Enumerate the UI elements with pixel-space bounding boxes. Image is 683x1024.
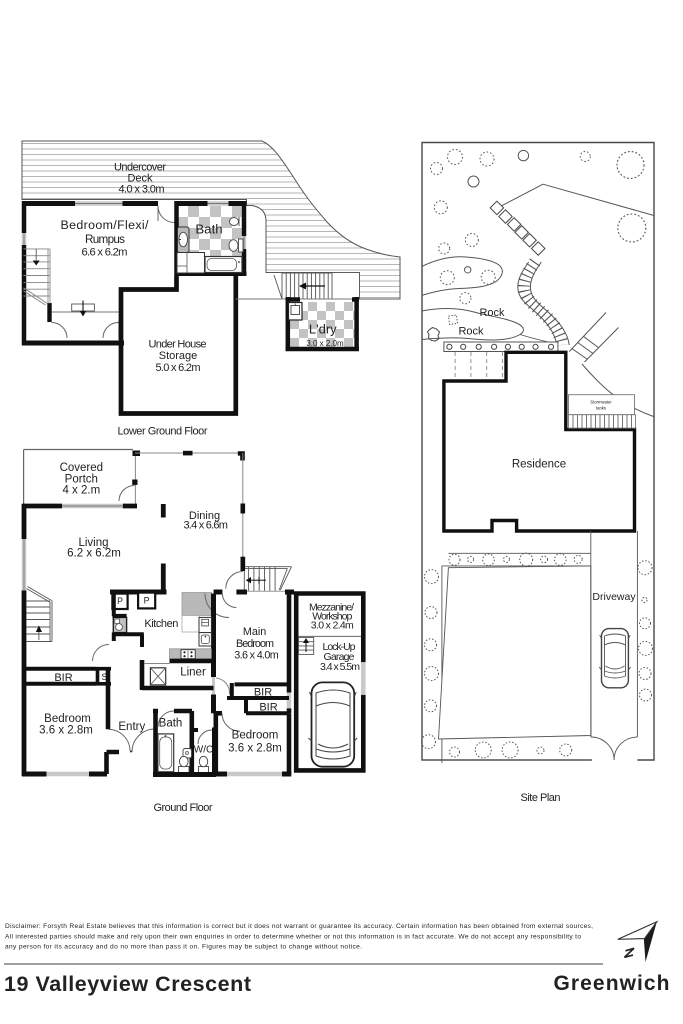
svg-text:All interested parties should: All interested parties should make and r… (5, 933, 581, 940)
svg-text:Under House: Under House (149, 339, 207, 351)
svg-text:19 Valleyview Crescent: 19 Valleyview Crescent (4, 972, 251, 996)
svg-text:Rumpus: Rumpus (85, 233, 125, 246)
svg-text:Entry: Entry (118, 721, 145, 733)
svg-text:Rock: Rock (458, 326, 484, 338)
svg-text:L'dry: L'dry (309, 322, 337, 337)
svg-text:6.6 x 6.2m: 6.6 x 6.2m (82, 246, 128, 258)
svg-text:Covered: Covered (60, 462, 103, 474)
svg-text:Bedroom: Bedroom (232, 730, 279, 742)
svg-text:BIR: BIR (54, 672, 72, 684)
svg-text:tanks: tanks (596, 406, 606, 411)
svg-text:BIR: BIR (254, 687, 272, 699)
svg-text:Greenwich: Greenwich (554, 972, 670, 995)
svg-text:Bath: Bath (159, 718, 183, 730)
svg-text:3.4 x 6.6m: 3.4 x 6.6m (183, 520, 228, 532)
svg-text:4.0 x 3.0m: 4.0 x 3.0m (119, 184, 165, 196)
svg-text:Driveway: Driveway (592, 591, 636, 603)
svg-text:Residence: Residence (512, 459, 566, 471)
svg-text:Site Plan: Site Plan (521, 792, 561, 804)
svg-text:Bath: Bath (195, 222, 222, 237)
svg-text:Bedroom: Bedroom (236, 638, 274, 650)
svg-text:3.6 x 4.0m: 3.6 x 4.0m (234, 650, 279, 662)
svg-text:BIR: BIR (259, 702, 277, 714)
svg-text:4 x 2.m: 4 x 2.m (62, 485, 100, 497)
svg-text:Bedroom: Bedroom (44, 713, 91, 725)
svg-text:3.0 x 2.4m: 3.0 x 2.4m (311, 620, 354, 632)
svg-text:P: P (117, 596, 123, 606)
svg-text:P: P (144, 596, 150, 606)
svg-text:Rock: Rock (479, 307, 505, 319)
svg-text:5.0 x 6.2m: 5.0 x 6.2m (156, 362, 201, 374)
svg-text:3.6 x 2.8m: 3.6 x 2.8m (228, 743, 282, 755)
svg-text:Main: Main (243, 626, 266, 638)
svg-text:Disclaimer: Forsyth Real Estat: Disclaimer: Forsyth Real Estate believes… (5, 923, 593, 930)
svg-text:Stormwater: Stormwater (590, 400, 612, 405)
svg-text:3.4 x 5.5m: 3.4 x 5.5m (320, 661, 360, 673)
svg-text:Storage: Storage (159, 350, 198, 362)
svg-text:Lower Ground Floor: Lower Ground Floor (118, 426, 208, 438)
svg-text:3.0 x 2.0m: 3.0 x 2.0m (306, 339, 344, 348)
svg-text:Liner: Liner (180, 667, 206, 679)
svg-text:W/C: W/C (194, 745, 213, 756)
svg-text:Kitchen: Kitchen (144, 618, 178, 630)
svg-text:3.6 x 2.8m: 3.6 x 2.8m (39, 725, 93, 737)
svg-text:Bedroom/Flexi/: Bedroom/Flexi/ (61, 218, 150, 232)
svg-text:any person for its accuracy an: any person for its accuracy and do no mo… (5, 944, 362, 951)
svg-text:Ground Floor: Ground Floor (154, 802, 213, 814)
svg-text:6.2 x 6.2m: 6.2 x 6.2m (67, 548, 121, 560)
